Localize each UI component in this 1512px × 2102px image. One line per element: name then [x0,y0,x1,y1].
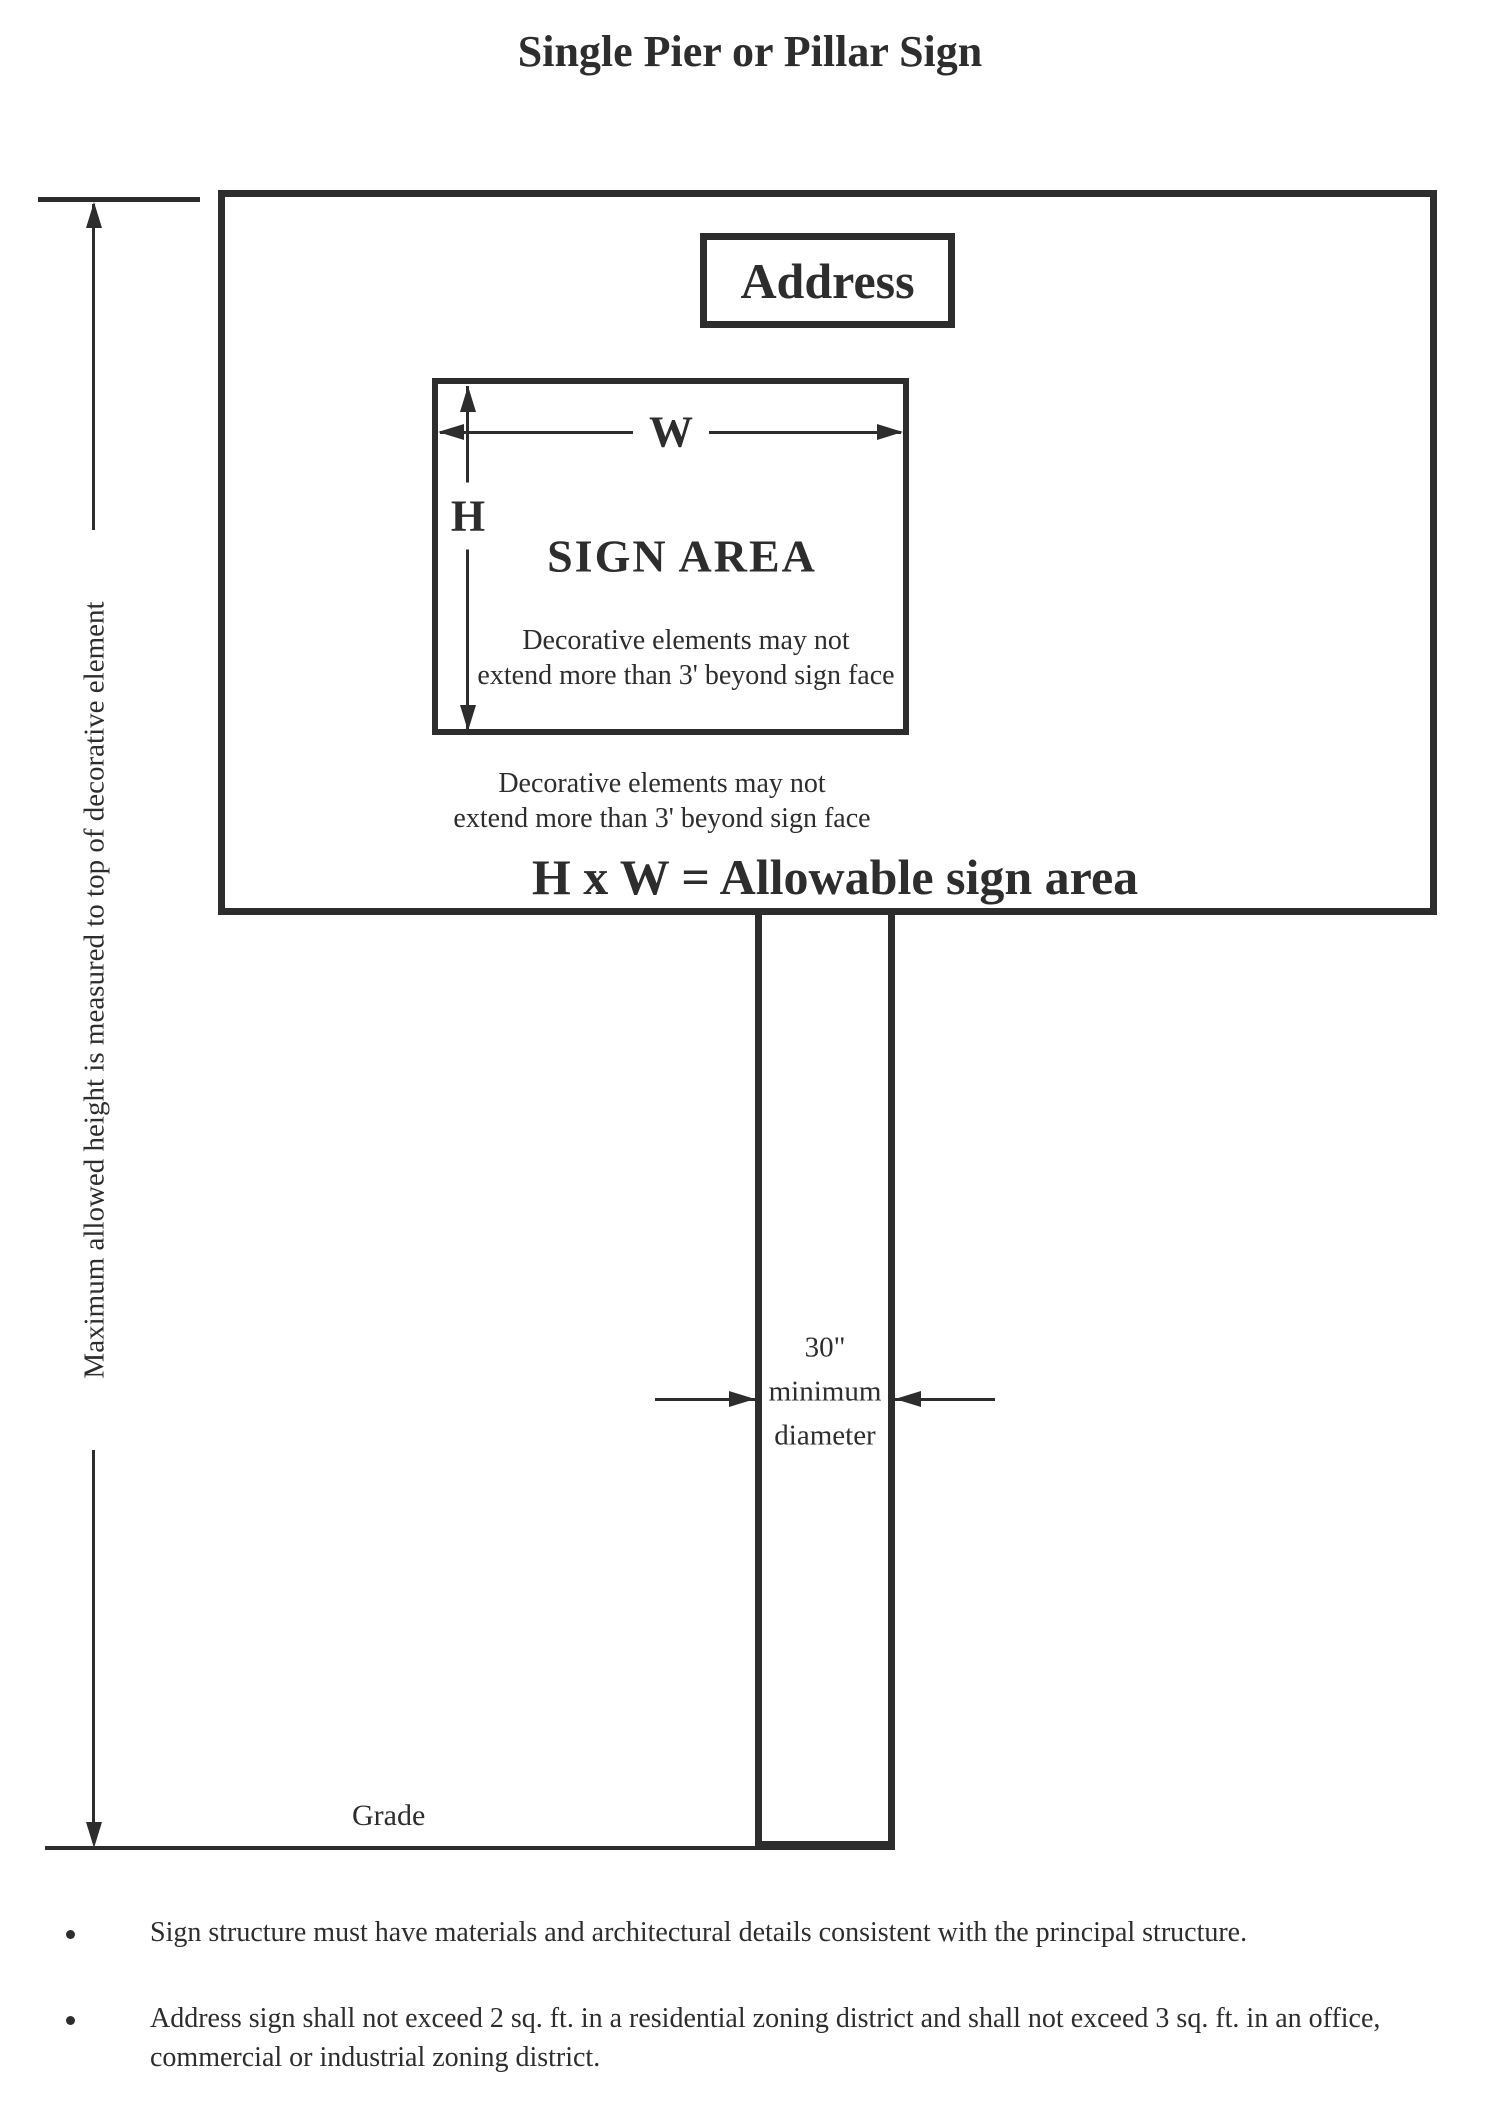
note-address-sign: Address sign shall not exceed 2 sq. ft. … [150,1999,1505,2077]
arrowhead-down-icon [86,1822,102,1848]
width-label: W [633,407,709,458]
pole-diameter-word2: diameter [774,1420,875,1453]
allowable-area-formula: H x W = Allowable sign area [532,848,1138,906]
max-height-label: Maximum allowed height is measured to to… [79,591,112,1388]
arrowhead-left-icon [895,1391,921,1407]
max-height-top-tick [38,197,200,202]
address-sign-box: Address [700,233,955,328]
outer-decorative-note-line2: extend more than 3' beyond sign face [453,803,870,835]
page-title: Single Pier or Pillar Sign [518,26,982,77]
note-sign-structure: Sign structure must have materials and a… [150,1913,1480,1952]
arrowhead-up-icon [460,386,476,412]
outer-decorative-note-line1: Decorative elements may not [498,768,825,800]
address-label: Address [740,252,914,310]
max-height-line-lower [92,1450,95,1824]
grade-label: Grade [352,1799,425,1833]
pole-diameter-word1: minimum [769,1376,882,1409]
inner-decorative-note-line1: Decorative elements may not [522,625,849,657]
max-height-line-upper [92,204,95,530]
zoning-diagram-page: Single Pier or Pillar Sign Maximum allow… [0,0,1512,2102]
arrowhead-down-icon [460,705,476,731]
bullet-icon [66,2016,75,2025]
height-dimension-line [466,386,469,729]
inner-decorative-note-line2: extend more than 3' beyond sign face [477,660,894,692]
sign-area-title: SIGN AREA [547,530,817,583]
arrowhead-left-icon [438,424,464,440]
pole-diameter-value: 30" [805,1332,846,1365]
bullet-icon [66,1930,75,1939]
arrowhead-right-icon [729,1391,755,1407]
arrowhead-right-icon [877,424,903,440]
height-label: H [447,483,489,550]
